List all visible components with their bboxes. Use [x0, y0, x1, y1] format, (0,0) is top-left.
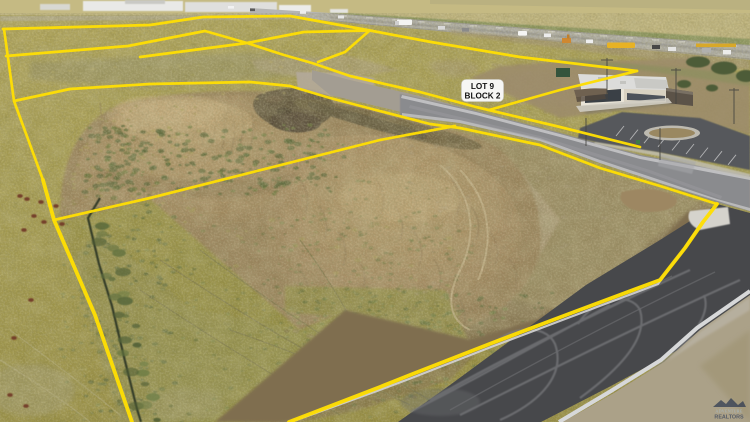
svg-text:ADVENTURE: ADVENTURE — [715, 409, 742, 414]
svg-text:BLOCK 2: BLOCK 2 — [465, 91, 501, 100]
svg-text:REALTORS: REALTORS — [714, 415, 744, 421]
svg-text:LOT 9: LOT 9 — [471, 82, 495, 91]
